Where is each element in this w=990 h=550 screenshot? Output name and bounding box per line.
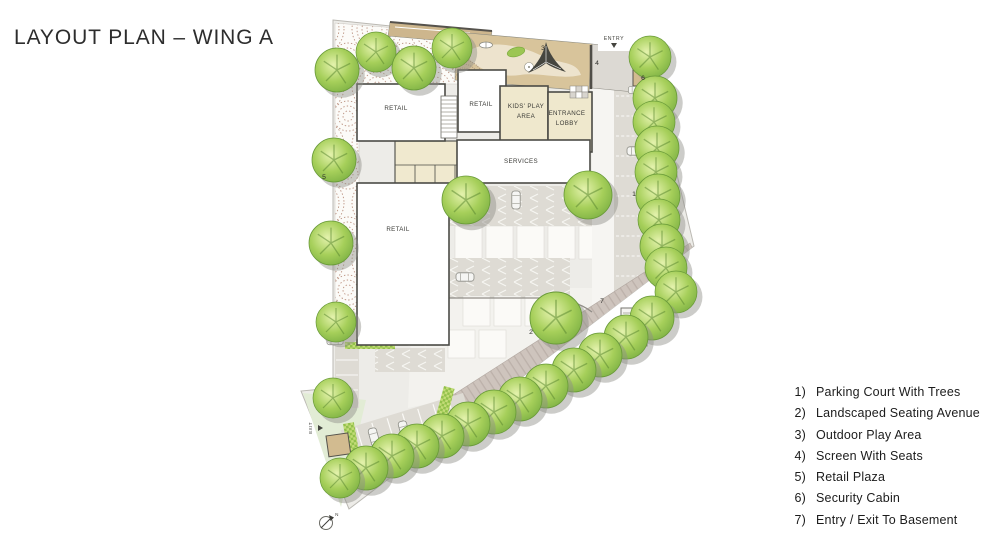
legend-item-2: 2) Landscaped Seating Avenue	[789, 406, 980, 420]
legend-item-7: 7) Entry / Exit To Basement	[789, 513, 980, 527]
legend-item-label: Entry / Exit To Basement	[816, 513, 957, 527]
marker-6: 6	[641, 75, 645, 82]
legend-item-4: 4) Screen With Seats	[789, 449, 980, 463]
north-label: N	[335, 512, 339, 517]
retail-main-building	[357, 183, 449, 345]
legend-item-label: Parking Court With Trees	[816, 385, 960, 399]
kids-play-label-2: AREA	[517, 113, 536, 120]
retail-top-label: RETAIL	[384, 105, 408, 112]
exit-label: EXIT	[308, 422, 313, 434]
legend-item-number: 1)	[789, 385, 806, 399]
entry-label: ENTRY	[604, 36, 625, 42]
services-label: SERVICES	[504, 158, 538, 165]
legend-item-label: Retail Plaza	[816, 470, 885, 484]
marker-4: 4	[595, 60, 599, 67]
marker-1: 1	[632, 191, 636, 198]
legend-item-number: 3)	[789, 428, 806, 442]
marker-5: 5	[322, 174, 326, 181]
retail-top-building	[357, 84, 445, 141]
north-arrow: N	[320, 512, 339, 530]
security-cabin-bottom	[326, 433, 351, 457]
legend: 1) Parking Court With Trees 2) Landscape…	[789, 385, 980, 534]
legend-item-6: 6) Security Cabin	[789, 491, 980, 505]
legend-item-label: Outdoor Play Area	[816, 428, 922, 442]
legend-item-number: 4)	[789, 449, 806, 463]
retail-main-label: RETAIL	[386, 226, 410, 233]
retail-upper-label: RETAIL	[469, 101, 493, 108]
marker-2: 2	[529, 329, 533, 336]
entrance-label-2: LOBBY	[556, 120, 578, 127]
legend-item-label: Landscaped Seating Avenue	[816, 406, 980, 420]
marker-7: 7	[600, 298, 604, 305]
legend-item-label: Screen With Seats	[816, 449, 923, 463]
legend-item-3: 3) Outdoor Play Area	[789, 428, 980, 442]
marker-3: 3	[541, 45, 545, 52]
legend-item-5: 5) Retail Plaza	[789, 470, 980, 484]
screen-with-seats	[592, 44, 634, 92]
legend-item-1: 1) Parking Court With Trees	[789, 385, 980, 399]
legend-item-number: 6)	[789, 491, 806, 505]
entrance-label-1: ENTRANCE	[549, 110, 586, 117]
legend-item-number: 2)	[789, 406, 806, 420]
kids-play-label-1: KIDS' PLAY	[508, 103, 544, 110]
legend-item-number: 5)	[789, 470, 806, 484]
legend-item-label: Security Cabin	[816, 491, 900, 505]
legend-item-number: 7)	[789, 513, 806, 527]
